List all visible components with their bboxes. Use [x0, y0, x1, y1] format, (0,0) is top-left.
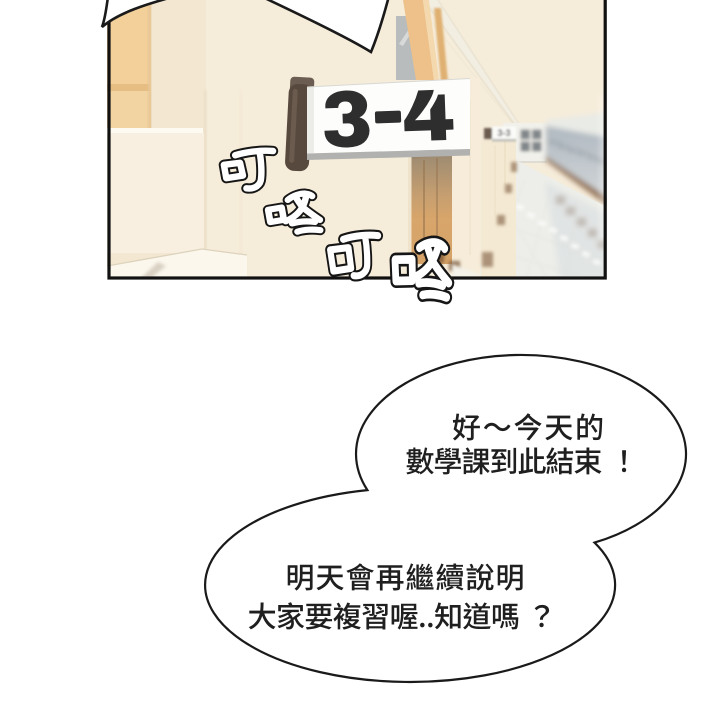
svg-text:3-3: 3-3: [497, 128, 510, 138]
